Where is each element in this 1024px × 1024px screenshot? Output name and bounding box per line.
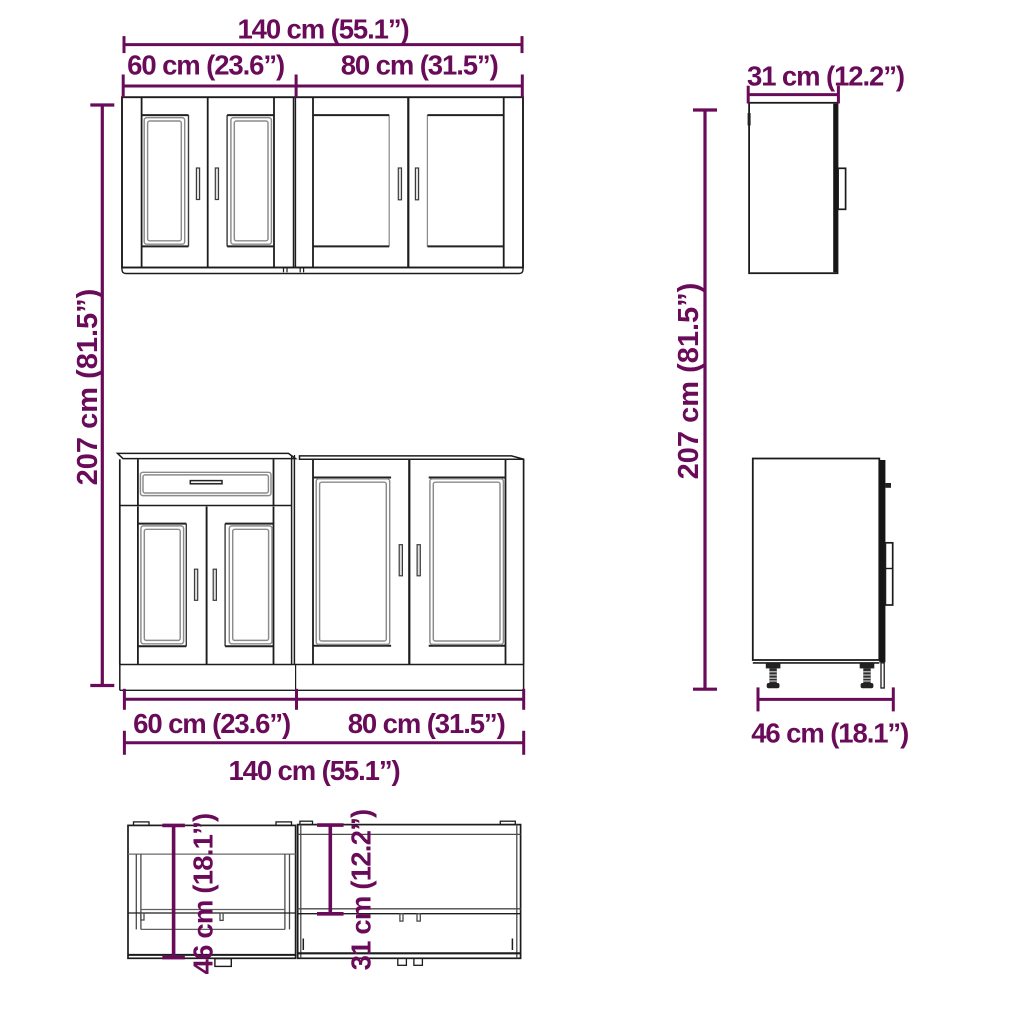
svg-text:140 cm (55.1”): 140 cm (55.1”): [228, 755, 399, 786]
svg-text:31 cm (12.2”): 31 cm (12.2”): [747, 61, 904, 92]
svg-text:60 cm (23.6”): 60 cm (23.6”): [127, 50, 284, 81]
svg-text:140 cm (55.1”): 140 cm (55.1”): [237, 14, 408, 45]
svg-text:31 cm (12.2”): 31 cm (12.2”): [346, 810, 377, 971]
svg-text:46 cm (18.1”): 46 cm (18.1”): [751, 718, 908, 749]
svg-text:207 cm (81.5”): 207 cm (81.5”): [673, 283, 705, 480]
svg-text:80 cm (31.5”): 80 cm (31.5”): [341, 50, 498, 81]
svg-text:46 cm (18.1”): 46 cm (18.1”): [188, 814, 219, 975]
svg-text:60 cm (23.6”): 60 cm (23.6”): [133, 708, 290, 739]
svg-text:80 cm (31.5”): 80 cm (31.5”): [348, 708, 505, 739]
svg-text:207 cm (81.5”): 207 cm (81.5”): [72, 289, 104, 486]
